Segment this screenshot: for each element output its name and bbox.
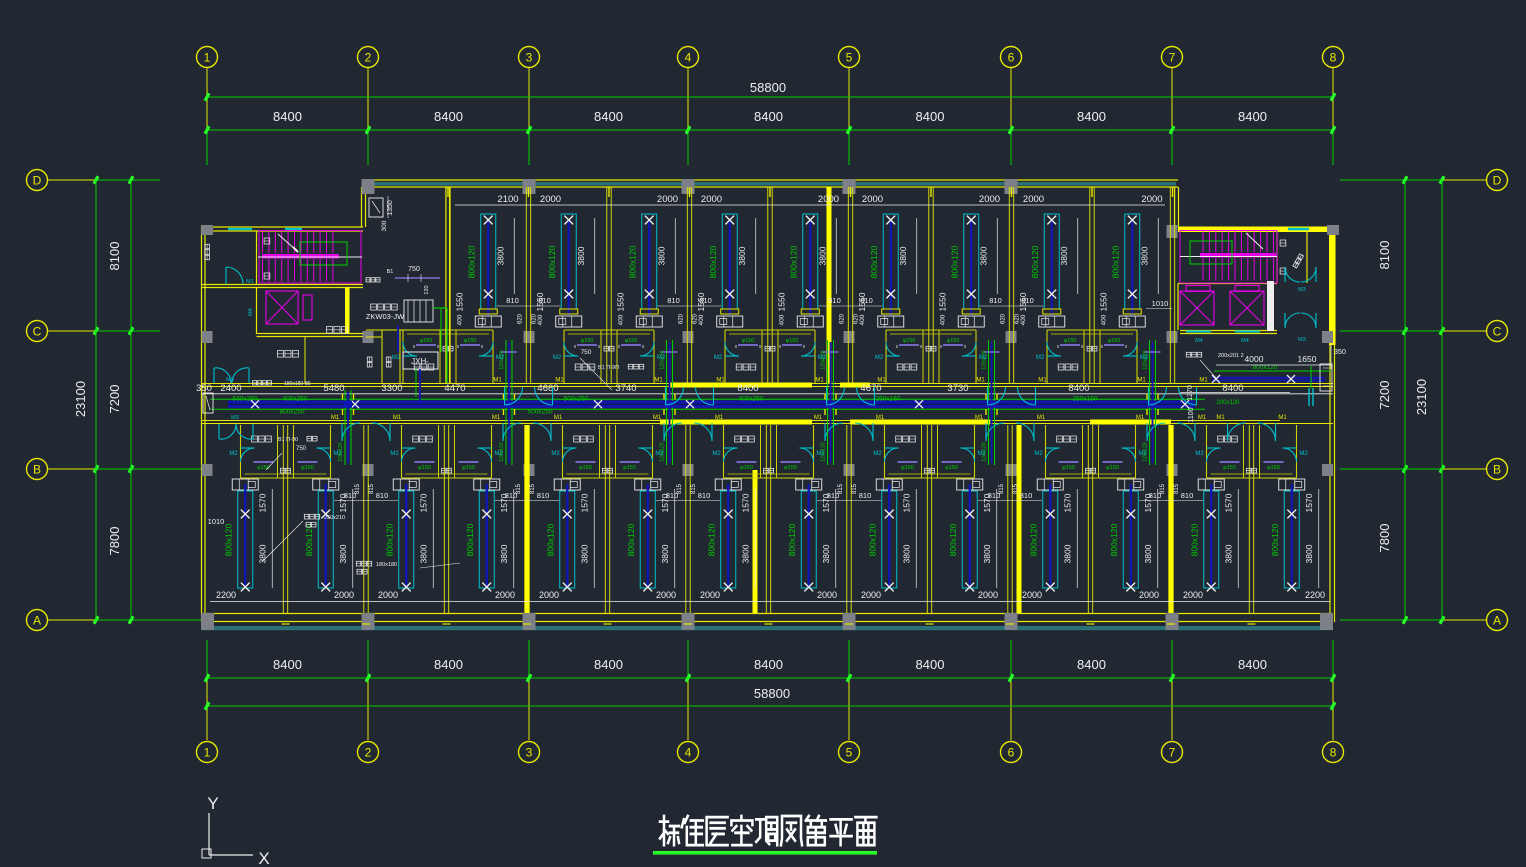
svg-text:B1 Π-90: B1 Π-90: [278, 437, 298, 443]
svg-text:3800: 3800: [576, 246, 586, 265]
svg-text:M2: M2: [1140, 355, 1149, 361]
svg-text:1550: 1550: [776, 292, 786, 311]
svg-text:800x120: 800x120: [1109, 523, 1119, 556]
svg-text:400: 400: [456, 314, 463, 325]
svg-text:800x120: 800x120: [869, 245, 879, 278]
svg-text:400x250: 400x250: [739, 395, 764, 402]
svg-text:M2: M2: [873, 451, 882, 457]
svg-text:M1: M1: [877, 378, 886, 384]
svg-text:1550: 1550: [937, 292, 947, 311]
svg-text:1550: 1550: [454, 292, 464, 311]
svg-text:3800: 3800: [821, 544, 831, 563]
svg-text:M2: M2: [714, 355, 723, 361]
svg-text:1570: 1570: [579, 493, 589, 512]
svg-text:D: D: [1493, 174, 1502, 188]
svg-text:C: C: [33, 325, 42, 339]
svg-text:810: 810: [1021, 296, 1034, 305]
svg-text:3800: 3800: [1062, 544, 1072, 563]
svg-text:2000: 2000: [978, 590, 998, 600]
svg-text:A: A: [33, 614, 41, 628]
svg-text:400: 400: [1100, 314, 1107, 325]
svg-text:3800: 3800: [901, 544, 911, 563]
svg-text:2000: 2000: [979, 194, 1000, 205]
svg-text:800x120: 800x120: [788, 245, 798, 278]
svg-text:3800: 3800: [499, 544, 509, 563]
svg-text:8400: 8400: [754, 657, 783, 672]
svg-text:3730: 3730: [947, 383, 968, 394]
svg-text:2000: 2000: [540, 194, 561, 205]
svg-text:M2: M2: [1036, 355, 1045, 361]
svg-text:4: 4: [685, 51, 692, 65]
svg-text:815: 815: [1174, 483, 1180, 494]
svg-text:8400: 8400: [737, 383, 758, 394]
svg-text:M2: M2: [1034, 451, 1043, 457]
svg-text:M1: M1: [331, 415, 340, 421]
svg-text:8400: 8400: [916, 109, 945, 124]
svg-text:3800: 3800: [898, 246, 908, 265]
svg-text:800x120: 800x120: [1189, 523, 1199, 556]
svg-text:180x180: 180x180: [376, 562, 397, 568]
svg-text:M1: M1: [1199, 378, 1208, 384]
svg-text:810: 810: [699, 296, 712, 305]
svg-text:M2: M2: [816, 451, 825, 457]
svg-text:φ150: φ150: [1106, 465, 1119, 471]
svg-text:2000: 2000: [334, 590, 354, 600]
svg-text:B1: B1: [387, 269, 394, 275]
svg-text:φ150: φ150: [740, 465, 753, 471]
svg-text:2000: 2000: [378, 590, 398, 600]
svg-text:M1: M1: [1037, 415, 1046, 421]
svg-text:2000: 2000: [700, 590, 720, 600]
svg-text:M2: M2: [551, 451, 560, 457]
svg-text:φ150: φ150: [903, 338, 916, 344]
svg-text:M3: M3: [231, 415, 239, 421]
svg-text:8400: 8400: [434, 109, 463, 124]
svg-text:M1: M1: [1278, 415, 1287, 421]
svg-text:58800: 58800: [754, 686, 790, 701]
svg-text:ZKW03-JW: ZKW03-JW: [366, 312, 405, 321]
svg-text:2000: 2000: [495, 590, 515, 600]
svg-text:M2: M2: [392, 355, 401, 361]
svg-text:250x160: 250x160: [1073, 395, 1098, 402]
svg-text:3800: 3800: [740, 544, 750, 563]
svg-text:815: 815: [516, 483, 522, 494]
svg-text:1570: 1570: [740, 493, 750, 512]
svg-text:120: 120: [424, 285, 430, 294]
svg-text:B: B: [1493, 463, 1501, 477]
svg-text:φ150: φ150: [1223, 465, 1236, 471]
svg-text:815: 815: [999, 483, 1005, 494]
svg-text:3800: 3800: [737, 246, 747, 265]
svg-text:M2: M2: [818, 355, 827, 361]
svg-text:3800: 3800: [1139, 246, 1149, 265]
svg-text:350: 350: [196, 383, 212, 394]
svg-text:810: 810: [537, 491, 550, 500]
svg-text:750: 750: [581, 349, 592, 356]
svg-text:B1 Π-9Π: B1 Π-9Π: [598, 365, 619, 371]
svg-text:M1: M1: [492, 415, 501, 421]
svg-text:620: 620: [532, 313, 538, 324]
svg-text:M1: M1: [1198, 415, 1207, 421]
svg-text:200x120: 200x120: [1216, 400, 1240, 406]
svg-text:750: 750: [408, 266, 420, 273]
svg-text:620: 620: [1015, 313, 1021, 324]
svg-text:800x120: 800x120: [1028, 523, 1038, 556]
svg-text:7: 7: [1169, 746, 1176, 760]
svg-text:400: 400: [859, 314, 866, 325]
svg-text:815: 815: [852, 483, 858, 494]
svg-text:φ150: φ150: [947, 338, 960, 344]
svg-text:4670: 4670: [860, 383, 881, 394]
svg-text:810: 810: [538, 296, 551, 305]
svg-text:400: 400: [617, 314, 624, 325]
svg-text:7800: 7800: [1377, 524, 1392, 553]
svg-text:2200: 2200: [216, 590, 236, 600]
svg-text:8400: 8400: [754, 109, 783, 124]
svg-text:2200: 2200: [1305, 590, 1325, 600]
svg-text:4660: 4660: [537, 383, 558, 394]
svg-text:M1: M1: [975, 415, 984, 421]
svg-text:2000: 2000: [862, 194, 883, 205]
svg-text:1570: 1570: [418, 493, 428, 512]
svg-text:2000: 2000: [818, 194, 839, 205]
svg-text:M2: M2: [657, 355, 666, 361]
svg-text:400x250: 400x250: [283, 395, 308, 402]
svg-text:M4: M4: [248, 308, 254, 316]
svg-text:φ150: φ150: [623, 465, 636, 471]
svg-text:2000: 2000: [701, 194, 722, 205]
svg-text:1010: 1010: [1152, 299, 1169, 308]
svg-text:8400: 8400: [916, 657, 945, 672]
svg-text:φ150: φ150: [901, 465, 914, 471]
svg-text:1550: 1550: [615, 292, 625, 311]
svg-text:8: 8: [1330, 51, 1337, 65]
svg-text:1010: 1010: [208, 517, 225, 526]
svg-text:3800: 3800: [1143, 544, 1153, 563]
svg-text:M1: M1: [1216, 415, 1225, 421]
svg-text:815: 815: [838, 483, 844, 494]
svg-text:φ150: φ150: [1064, 338, 1077, 344]
svg-text:7200: 7200: [1377, 381, 1392, 410]
svg-text:810: 810: [859, 491, 872, 500]
svg-text:6: 6: [1008, 51, 1015, 65]
svg-text:2000: 2000: [1139, 590, 1159, 600]
svg-text:M3: M3: [226, 377, 234, 383]
svg-text:3800: 3800: [257, 544, 267, 563]
svg-text:2: 2: [365, 746, 372, 760]
svg-text:8400: 8400: [1238, 109, 1267, 124]
svg-text:M2: M2: [875, 355, 884, 361]
svg-text:810: 810: [828, 296, 841, 305]
svg-text:φ150: φ150: [1062, 465, 1075, 471]
svg-text:M1: M1: [876, 415, 885, 421]
svg-text:800x120: 800x120: [1030, 245, 1040, 278]
svg-text:M1: M1: [554, 415, 563, 421]
svg-text:8400: 8400: [1077, 657, 1106, 672]
svg-text:810: 810: [506, 296, 519, 305]
svg-text:4470: 4470: [444, 383, 465, 394]
svg-text:620: 620: [518, 313, 524, 324]
svg-text:815: 815: [369, 483, 375, 494]
svg-text:C: C: [1493, 325, 1502, 339]
svg-text:8100: 8100: [1377, 241, 1392, 270]
svg-text:620: 620: [840, 313, 846, 324]
svg-text:4000: 4000: [1245, 354, 1264, 364]
svg-text:810: 810: [1181, 491, 1194, 500]
svg-text:800x120: 800x120: [949, 245, 959, 278]
svg-text:8400: 8400: [594, 657, 623, 672]
svg-text:φ150: φ150: [420, 338, 433, 344]
svg-text:M3: M3: [1298, 287, 1306, 293]
svg-text:3800: 3800: [418, 544, 428, 563]
svg-text:4: 4: [685, 746, 692, 760]
svg-text:1270: 1270: [1187, 385, 1194, 401]
svg-text:M2: M2: [979, 355, 988, 361]
svg-text:400: 400: [537, 314, 544, 325]
svg-text:M1: M1: [1038, 378, 1047, 384]
svg-text:7200: 7200: [107, 385, 122, 414]
svg-text:810: 810: [989, 296, 1002, 305]
svg-text:1570: 1570: [1062, 493, 1072, 512]
svg-text:400: 400: [698, 314, 705, 325]
svg-text:400: 400: [1020, 314, 1027, 325]
svg-text:8100: 8100: [107, 242, 122, 271]
svg-text:3800: 3800: [579, 544, 589, 563]
svg-text:M2: M2: [1195, 451, 1204, 457]
svg-text:M1: M1: [393, 415, 402, 421]
svg-text:250x160: 250x160: [876, 395, 901, 402]
svg-text:Y: Y: [207, 794, 218, 813]
svg-text:300: 300: [381, 220, 388, 231]
svg-text:φ150: φ150: [301, 465, 314, 471]
svg-text:3800: 3800: [338, 544, 348, 563]
svg-text:φ150: φ150: [786, 338, 799, 344]
svg-text:8400: 8400: [594, 109, 623, 124]
svg-text:815: 815: [677, 483, 683, 494]
svg-text:3800: 3800: [817, 246, 827, 265]
svg-text:M2: M2: [229, 451, 238, 457]
svg-text:M2: M2: [712, 451, 721, 457]
svg-text:810: 810: [667, 296, 680, 305]
svg-text:750: 750: [296, 446, 307, 452]
svg-text:500x250: 500x250: [564, 395, 589, 402]
svg-text:φ150: φ150: [579, 465, 592, 471]
svg-text:M1: M1: [246, 279, 254, 285]
svg-text:800x120: 800x120: [1110, 245, 1120, 278]
svg-text:8400: 8400: [1077, 109, 1106, 124]
svg-text:M1: M1: [1137, 378, 1146, 384]
svg-text:M3: M3: [1298, 337, 1306, 343]
svg-text:815: 815: [1013, 483, 1019, 494]
svg-text:φ150: φ150: [784, 465, 797, 471]
svg-text:JXH-: JXH-: [411, 357, 429, 366]
svg-text:φ150: φ150: [462, 465, 475, 471]
svg-text:800x120: 800x120: [304, 523, 314, 556]
svg-text:M2: M2: [1138, 451, 1147, 457]
svg-text:M1: M1: [716, 378, 725, 384]
svg-text:810: 810: [698, 491, 711, 500]
svg-text:3300: 3300: [381, 383, 402, 394]
svg-text:3: 3: [526, 746, 533, 760]
svg-text:23100: 23100: [1414, 379, 1429, 415]
svg-text:1: 1: [204, 746, 211, 760]
svg-text:350: 350: [1334, 349, 1346, 356]
svg-text:810: 810: [1020, 491, 1033, 500]
svg-text:M1: M1: [715, 415, 724, 421]
svg-text:M1: M1: [976, 378, 985, 384]
svg-text:M1: M1: [814, 415, 823, 421]
svg-text:1570: 1570: [257, 493, 267, 512]
svg-text:815: 815: [355, 483, 361, 494]
svg-text:3800: 3800: [656, 246, 666, 265]
svg-text:620: 620: [1001, 313, 1007, 324]
svg-text:800x120: 800x120: [948, 523, 958, 556]
svg-text:800x120: 800x120: [384, 523, 394, 556]
svg-text:M1: M1: [653, 415, 662, 421]
svg-text:815: 815: [1160, 483, 1166, 494]
svg-text:800x120: 800x120: [466, 245, 476, 278]
svg-text:X: X: [258, 849, 269, 867]
svg-text:800x120: 800x120: [627, 245, 637, 278]
svg-text:M1: M1: [555, 378, 564, 384]
svg-text:58800: 58800: [750, 80, 786, 95]
svg-text:1550: 1550: [1098, 292, 1108, 311]
svg-text:M2: M2: [977, 451, 986, 457]
svg-text:5: 5: [846, 51, 853, 65]
svg-text:3: 3: [526, 51, 533, 65]
svg-text:1570: 1570: [901, 493, 911, 512]
svg-text:M1: M1: [1136, 415, 1145, 421]
svg-text:800x120: 800x120: [1270, 523, 1280, 556]
svg-text:800x120: 800x120: [465, 523, 475, 556]
svg-text:8: 8: [1330, 746, 1337, 760]
svg-text:400: 400: [939, 314, 946, 325]
svg-text:B: B: [33, 463, 41, 477]
svg-text:2000: 2000: [539, 590, 559, 600]
svg-text:800x120: 800x120: [706, 523, 716, 556]
svg-text:7800: 7800: [107, 527, 122, 556]
svg-text:3800: 3800: [495, 246, 505, 265]
svg-text:M2: M2: [1299, 451, 1308, 457]
svg-text:1570: 1570: [1223, 493, 1233, 512]
svg-text:φ150: φ150: [418, 465, 431, 471]
svg-text:8400: 8400: [434, 657, 463, 672]
svg-text:8400: 8400: [1068, 383, 1089, 394]
svg-text:5480: 5480: [323, 383, 344, 394]
svg-text:2000: 2000: [1141, 194, 1162, 205]
svg-text:φ150: φ150: [464, 338, 477, 344]
svg-text:2000: 2000: [1183, 590, 1203, 600]
svg-text:8400: 8400: [1238, 657, 1267, 672]
svg-text:800x120: 800x120: [867, 523, 877, 556]
svg-text:3740: 3740: [615, 383, 636, 394]
svg-text:800x120: 800x120: [547, 245, 557, 278]
svg-text:M2: M2: [553, 355, 562, 361]
svg-text:8400: 8400: [273, 657, 302, 672]
svg-text:810: 810: [860, 296, 873, 305]
svg-text:1650: 1650: [1298, 354, 1317, 364]
svg-text:800x120: 800x120: [545, 523, 555, 556]
svg-text:810: 810: [376, 491, 389, 500]
svg-text:1: 1: [204, 51, 211, 65]
svg-text:800x250: 800x250: [280, 409, 305, 416]
svg-text:2000: 2000: [656, 590, 676, 600]
svg-text:3800: 3800: [1223, 544, 1233, 563]
svg-text:2000: 2000: [817, 590, 837, 600]
svg-text:M4: M4: [1195, 338, 1203, 344]
svg-text:φ150: φ150: [1267, 465, 1280, 471]
svg-text:3800: 3800: [1304, 544, 1314, 563]
svg-text:M2: M2: [390, 451, 399, 457]
svg-text:2100: 2100: [497, 194, 518, 205]
svg-text:400: 400: [778, 314, 785, 325]
svg-text:2000: 2000: [1023, 194, 1044, 205]
svg-text:620: 620: [679, 313, 685, 324]
svg-text:2: 2: [365, 51, 372, 65]
svg-text:3800: 3800: [1059, 246, 1069, 265]
svg-text:φ150: φ150: [625, 338, 638, 344]
svg-text:φ150: φ150: [742, 338, 755, 344]
svg-text:φ150: φ150: [945, 465, 958, 471]
svg-text:φ150: φ150: [1108, 338, 1121, 344]
svg-text:2000: 2000: [657, 194, 678, 205]
svg-text:M2: M2: [494, 451, 503, 457]
svg-text:23100: 23100: [73, 381, 88, 417]
svg-text:800x120: 800x120: [223, 523, 233, 556]
svg-text:M2: M2: [496, 355, 505, 361]
svg-text:7: 7: [1169, 51, 1176, 65]
svg-text:2000: 2000: [1022, 590, 1042, 600]
svg-text:250x210: 250x210: [324, 515, 345, 521]
svg-text:M2: M2: [333, 451, 342, 457]
svg-text:1100: 1100: [1188, 407, 1195, 422]
svg-text:815: 815: [691, 483, 697, 494]
svg-text:200x201 2: 200x201 2: [1218, 353, 1244, 359]
svg-text:3800: 3800: [660, 544, 670, 563]
svg-text:800x120: 800x120: [626, 523, 636, 556]
svg-text:180x180 B5: 180x180 B5: [284, 381, 311, 387]
svg-text:800x120: 800x120: [708, 245, 718, 278]
svg-text:6: 6: [1008, 746, 1015, 760]
svg-text:620: 620: [693, 313, 699, 324]
svg-text:620: 620: [854, 313, 860, 324]
svg-text:φ150: φ150: [581, 338, 594, 344]
svg-text:M1: M1: [654, 378, 663, 384]
svg-text:M4: M4: [1241, 338, 1249, 344]
svg-text:M1: M1: [815, 378, 824, 384]
svg-text:A: A: [1493, 614, 1501, 628]
svg-text:1570: 1570: [1304, 493, 1314, 512]
svg-text:800x120: 800x120: [787, 523, 797, 556]
svg-text:M2: M2: [655, 451, 664, 457]
svg-text:2000: 2000: [861, 590, 881, 600]
svg-text:630x250: 630x250: [233, 395, 258, 402]
svg-text:500x250: 500x250: [528, 409, 553, 416]
svg-text:815: 815: [530, 483, 536, 494]
svg-text:3800: 3800: [982, 544, 992, 563]
svg-text:5: 5: [846, 746, 853, 760]
svg-text:3800: 3800: [978, 246, 988, 265]
svg-text:2400: 2400: [220, 383, 241, 394]
svg-text:8400: 8400: [273, 109, 302, 124]
svg-text:D: D: [33, 174, 42, 188]
svg-text:M1: M1: [493, 378, 502, 384]
